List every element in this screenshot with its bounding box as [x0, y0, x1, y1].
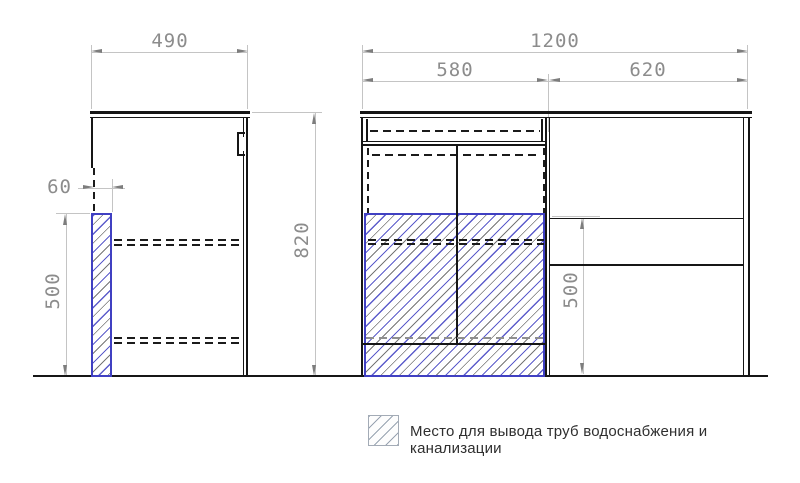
cabinet-edge	[361, 117, 363, 376]
dim-arrow	[537, 78, 548, 82]
extension-line	[56, 213, 90, 214]
dim-label-pipe-height: 500	[43, 251, 63, 331]
rail-line	[361, 141, 547, 142]
dim-arrow	[63, 214, 67, 225]
section-divider	[549, 117, 550, 376]
dim-arrow	[237, 49, 248, 53]
dim-label-pipe-offset: 60	[28, 177, 72, 197]
hidden-shelf-line	[114, 239, 243, 241]
hidden-shelf-line	[368, 243, 544, 245]
hidden-side-panel	[367, 148, 369, 213]
cabinet-edge	[246, 117, 248, 376]
dim-arrow	[112, 185, 123, 189]
pipe-zone-hatch-front	[364, 213, 545, 377]
shelf-line	[550, 264, 743, 266]
extension-line	[552, 216, 600, 217]
dim-line-front-right	[548, 81, 748, 82]
extension-line	[362, 45, 363, 109]
door-handle	[237, 132, 245, 134]
dim-arrow	[362, 78, 373, 82]
dim-line-front-height	[315, 113, 316, 376]
dim-label-front-height: 820	[292, 200, 312, 280]
dim-label-front-total-width: 1200	[515, 31, 595, 51]
hidden-shelf-line	[114, 337, 243, 339]
pipe-zone-hatch-side	[91, 213, 112, 377]
dim-arrow	[312, 113, 316, 124]
dim-arrow	[91, 49, 102, 53]
cabinet-edge	[743, 117, 744, 376]
hidden-bottom-line	[366, 337, 544, 339]
cabinet-edge	[748, 117, 750, 376]
cabinet-edge	[243, 117, 244, 376]
countertop-side	[90, 111, 250, 118]
dim-arrow	[549, 78, 560, 82]
cabinet-edge	[91, 117, 93, 168]
dim-line-pipe-height	[66, 214, 67, 376]
dim-arrow	[580, 363, 584, 374]
dim-label-front-left-width: 580	[415, 60, 495, 80]
dim-arrow	[737, 78, 748, 82]
hidden-shelf-line	[368, 239, 544, 241]
dim-arrow	[580, 218, 584, 229]
extension-line	[747, 45, 748, 109]
hidden-shelf-line	[114, 244, 243, 246]
cabinet-edge	[545, 117, 547, 376]
technical-drawing: 490 1200 580 620 60 500 820 500	[0, 0, 800, 483]
door-handle	[237, 154, 245, 156]
dim-line-front-total	[362, 52, 748, 53]
shelf-line	[550, 218, 743, 219]
hidden-side-panel	[543, 148, 545, 213]
extension-line	[91, 45, 92, 109]
hidden-shelf-line	[114, 342, 243, 344]
countertop-front	[360, 111, 752, 118]
dim-arrow	[362, 49, 373, 53]
dim-arrow	[737, 49, 748, 53]
dim-line-shelf-height	[583, 218, 584, 374]
extension-line	[112, 179, 113, 212]
dim-label-side-width: 490	[130, 31, 210, 51]
rail-line	[361, 144, 547, 146]
rail-side	[366, 119, 368, 141]
extension-line	[247, 45, 248, 109]
rail-side	[541, 119, 543, 141]
handle-recess	[242, 137, 245, 151]
dim-line-front-left	[362, 81, 548, 82]
legend-text: Место для вывода труб водоснабжения и ка…	[410, 423, 770, 457]
legend-hatch-swatch	[368, 415, 399, 446]
cabinet-bottom	[361, 343, 547, 345]
hidden-rail-line	[370, 130, 540, 132]
dim-label-front-right-width: 620	[608, 60, 688, 80]
door-handle	[237, 132, 239, 156]
hidden-back-edge	[93, 168, 95, 214]
dim-label-shelf-height: 500	[561, 250, 581, 330]
dim-line-side-width	[91, 52, 248, 53]
